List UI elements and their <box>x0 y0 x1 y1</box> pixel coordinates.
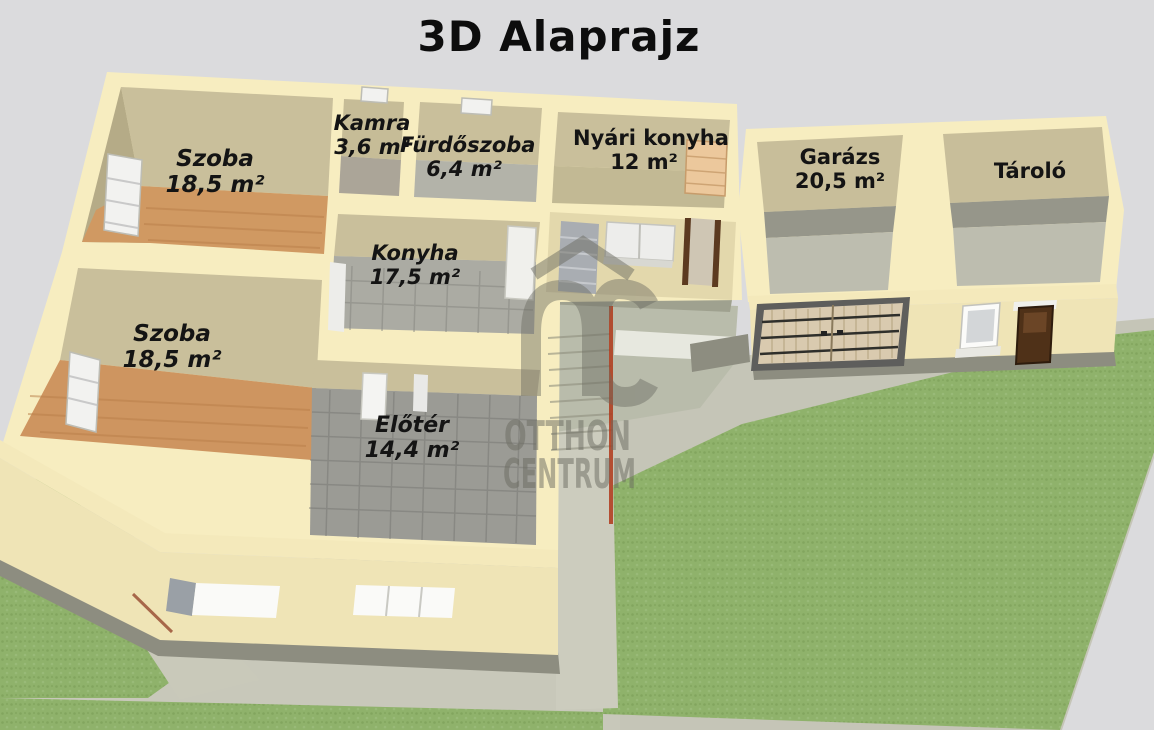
room-label-garazs: Garázs 20,5 m² <box>771 146 909 193</box>
door <box>687 218 717 286</box>
room-name: Nyári konyha <box>573 127 715 151</box>
window <box>461 98 492 115</box>
room-area: 18,5 m² <box>150 173 280 199</box>
room-tarolo <box>943 127 1109 286</box>
room-label-furdoszoba: Fürdőszoba 6,4 m² <box>400 134 528 181</box>
floorplan-page: { "title": "3D Alaprajz", "watermark": {… <box>0 0 1154 730</box>
room-name: Konyha <box>352 242 478 266</box>
room-label-tarolo: Tároló <box>961 160 1099 184</box>
room-name: Szoba <box>103 322 241 348</box>
room-name: Előtér <box>346 414 478 439</box>
page-title: 3D Alaprajz <box>0 12 1136 61</box>
kitchen-counter <box>328 262 346 332</box>
room-label-eloter: Előtér 14,4 m² <box>346 414 478 463</box>
garage-door <box>751 297 910 371</box>
room-area: 12 m² <box>573 151 715 175</box>
room-area: 17,5 m² <box>352 266 478 290</box>
room-area: 14,4 m² <box>346 439 478 464</box>
door <box>505 226 536 300</box>
window <box>66 352 100 432</box>
room-name: Garázs <box>771 146 909 170</box>
room-area: 20,5 m² <box>771 170 909 194</box>
window <box>192 583 280 618</box>
window <box>361 87 388 103</box>
room-label-konyha: Konyha 17,5 m² <box>352 242 478 289</box>
watermark-line2: CENTRUM <box>503 450 636 498</box>
room-name: Kamra <box>317 112 427 136</box>
room-label-szoba-2: Szoba 18,5 m² <box>103 322 241 374</box>
room-name: Szoba <box>150 147 280 173</box>
room-label-szoba-1: Szoba 18,5 m² <box>150 147 280 199</box>
door <box>1013 300 1057 364</box>
window <box>353 585 455 618</box>
room-name: Fürdőszoba <box>400 134 528 158</box>
room-name: Tároló <box>961 160 1099 184</box>
room-label-nyari-konyha: Nyári konyha 12 m² <box>573 127 715 174</box>
room-area: 6,4 m² <box>400 158 528 182</box>
window <box>955 303 1001 358</box>
room-area: 18,5 m² <box>103 348 241 374</box>
